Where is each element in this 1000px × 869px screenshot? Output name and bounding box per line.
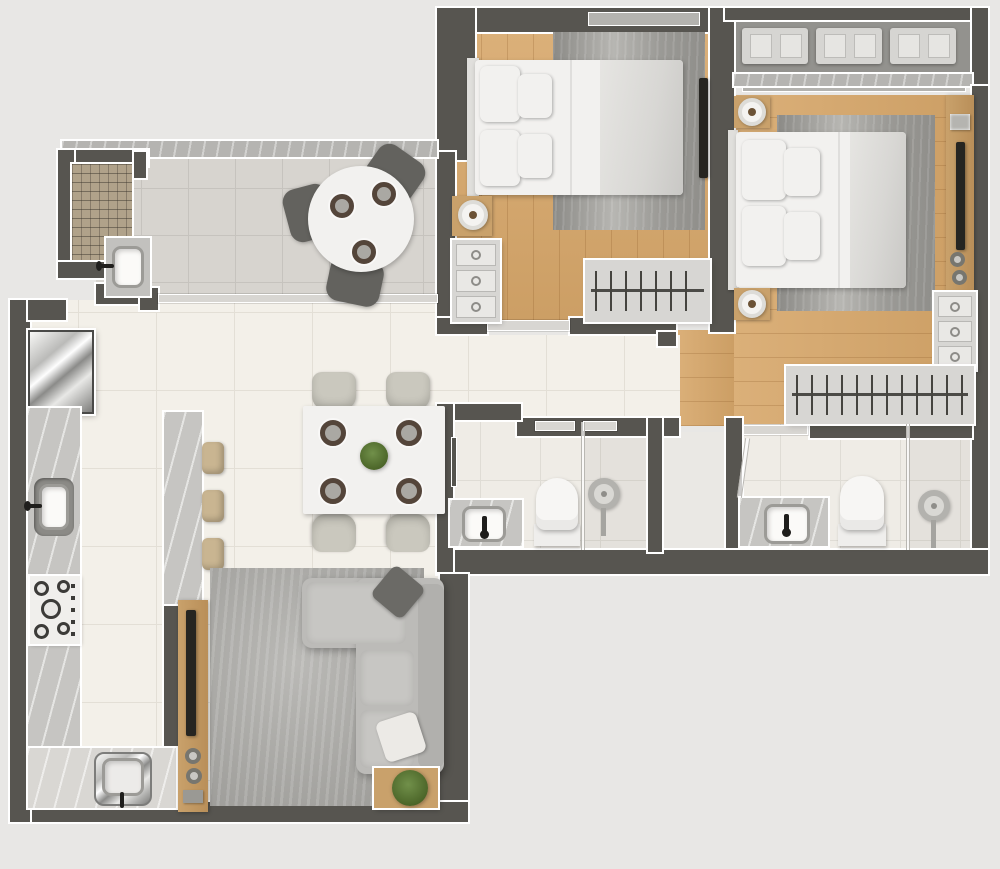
dining-chair-2 <box>386 372 430 410</box>
bar-stool-3 <box>202 538 224 570</box>
shaft-floor <box>653 432 731 548</box>
bedroom-2-dresser <box>934 292 976 370</box>
bathroom-2-top-wall <box>810 422 972 438</box>
bedroom-2-floor-lobe <box>676 330 734 426</box>
bedroom-2-tv <box>956 142 965 250</box>
living-potted-plant <box>392 770 428 806</box>
ac-condenser-2 <box>816 28 882 64</box>
ac-condenser-1 <box>742 28 808 64</box>
living-room-tv <box>186 610 196 736</box>
rack-hangers <box>595 271 700 311</box>
bathroom-2-door-track <box>742 425 808 435</box>
bedroom-2-knob-1 <box>950 252 965 267</box>
dining-chair-3 <box>312 514 356 552</box>
bedroom-1-tv <box>699 78 708 178</box>
drawer <box>456 244 496 266</box>
sofa-seat-cushion-1 <box>360 650 414 706</box>
balcony-place-setting-2 <box>372 182 396 206</box>
bedroom-1-window <box>588 12 700 26</box>
bathroom-2-glass-partition <box>906 424 910 550</box>
speaker-2 <box>186 768 202 784</box>
bedroom-2-window-sill <box>734 74 972 86</box>
bedroom-1-lamp <box>458 200 488 230</box>
dining-chair-1 <box>312 372 356 410</box>
burner <box>57 580 70 593</box>
place-setting-2 <box>396 420 422 446</box>
bathroom-1-faucet-knob <box>480 530 489 539</box>
bedroom-2-pillow-2 <box>742 206 786 266</box>
bedroom-2-window-line <box>742 87 966 92</box>
bathroom-1-toilet-bowl <box>536 478 578 530</box>
dining-centerpiece-plant <box>360 442 388 470</box>
laundry-niche-stub-top <box>134 152 146 178</box>
place-setting-1 <box>320 420 346 446</box>
bathroom-2-toilet-bowl <box>840 476 884 530</box>
drawer <box>938 321 972 342</box>
bedroom-1-pillow-2 <box>480 130 520 186</box>
speaker-1 <box>185 748 201 764</box>
bathroom-1-shower-pipe <box>601 508 606 536</box>
bathroom-2-shower-head <box>918 490 950 522</box>
drawer <box>938 296 972 317</box>
shaft-left-wall <box>648 418 662 552</box>
bedroom-1-pillow-4 <box>518 134 552 178</box>
bedroom-2-door-jamb <box>658 332 676 346</box>
living-room-right-wall <box>440 574 468 818</box>
kitchen-faucet-knob <box>24 501 31 511</box>
burner <box>57 622 70 635</box>
bedroom-2-duvet <box>850 132 906 288</box>
shower-zone-2 <box>908 424 974 550</box>
steel-sink-basin <box>102 758 144 796</box>
bedroom-2-pillow-3 <box>784 148 820 196</box>
bathroom-1-door-track <box>535 421 575 431</box>
left-step-wall <box>28 300 66 320</box>
apartment-left-wall <box>10 300 30 822</box>
refrigerator <box>28 330 94 414</box>
drawer <box>456 270 496 292</box>
floor-plan-render <box>0 0 1000 869</box>
bedroom-2-bed-fold <box>838 132 840 288</box>
shaft-door-track <box>583 421 617 431</box>
balcony-sliding-door-track <box>158 294 438 303</box>
drawer <box>938 346 972 367</box>
bathroom-1-towel-bar <box>452 438 456 486</box>
ac-condenser-3 <box>890 28 956 64</box>
bedroom-1-pillow-1 <box>480 66 520 122</box>
steel-sink-faucet <box>120 792 124 808</box>
tech-balcony-right-wall <box>972 8 988 88</box>
cooktop-knobs <box>71 584 75 636</box>
bathroom-2-faucet-knob <box>782 528 791 537</box>
bedroom-2-pillow-4 <box>784 212 820 260</box>
bedroom-2-knob-2 <box>952 270 967 285</box>
bedroom-2-lamp-bottom <box>738 290 766 318</box>
bathroom-2-shower-pipe <box>931 520 936 548</box>
laundry-faucet-handle <box>96 261 102 271</box>
bedroom-2-clothes-rack <box>786 366 974 424</box>
burner <box>34 581 49 596</box>
burner <box>34 624 49 639</box>
dining-chair-4 <box>386 514 430 552</box>
bedroom-2-wall-light <box>950 114 970 130</box>
bar-stool-2 <box>202 490 224 522</box>
bedroom-1-bed-fold <box>570 60 572 195</box>
drawer <box>456 296 496 318</box>
balcony-place-setting-3 <box>352 240 376 264</box>
burner-large <box>41 599 61 619</box>
media-panel-object <box>183 790 203 803</box>
bedroom-1-dresser <box>452 240 500 322</box>
bedroom-1-duvet <box>600 60 683 195</box>
balcony-place-setting-1 <box>330 194 354 218</box>
place-setting-3 <box>320 478 346 504</box>
tech-balcony-top-wall <box>725 8 985 20</box>
peninsula-counter <box>164 412 202 604</box>
bedroom-1-clothes-rack <box>585 260 710 322</box>
bathroom-1-glass-partition <box>581 422 585 550</box>
kitchen-sink-basin <box>39 484 69 530</box>
bedroom-1-pillow-3 <box>518 74 552 118</box>
laundry-sink-basin <box>112 246 144 288</box>
bar-stool-1 <box>202 442 224 474</box>
bathroom-1-shower-head <box>588 478 620 510</box>
place-setting-4 <box>396 478 422 504</box>
rack-hangers <box>796 375 964 415</box>
bedroom-2-lamp-top <box>738 98 766 126</box>
bathrooms-bottom-wall <box>437 550 988 574</box>
bedroom-2-pillow-1 <box>742 140 786 200</box>
